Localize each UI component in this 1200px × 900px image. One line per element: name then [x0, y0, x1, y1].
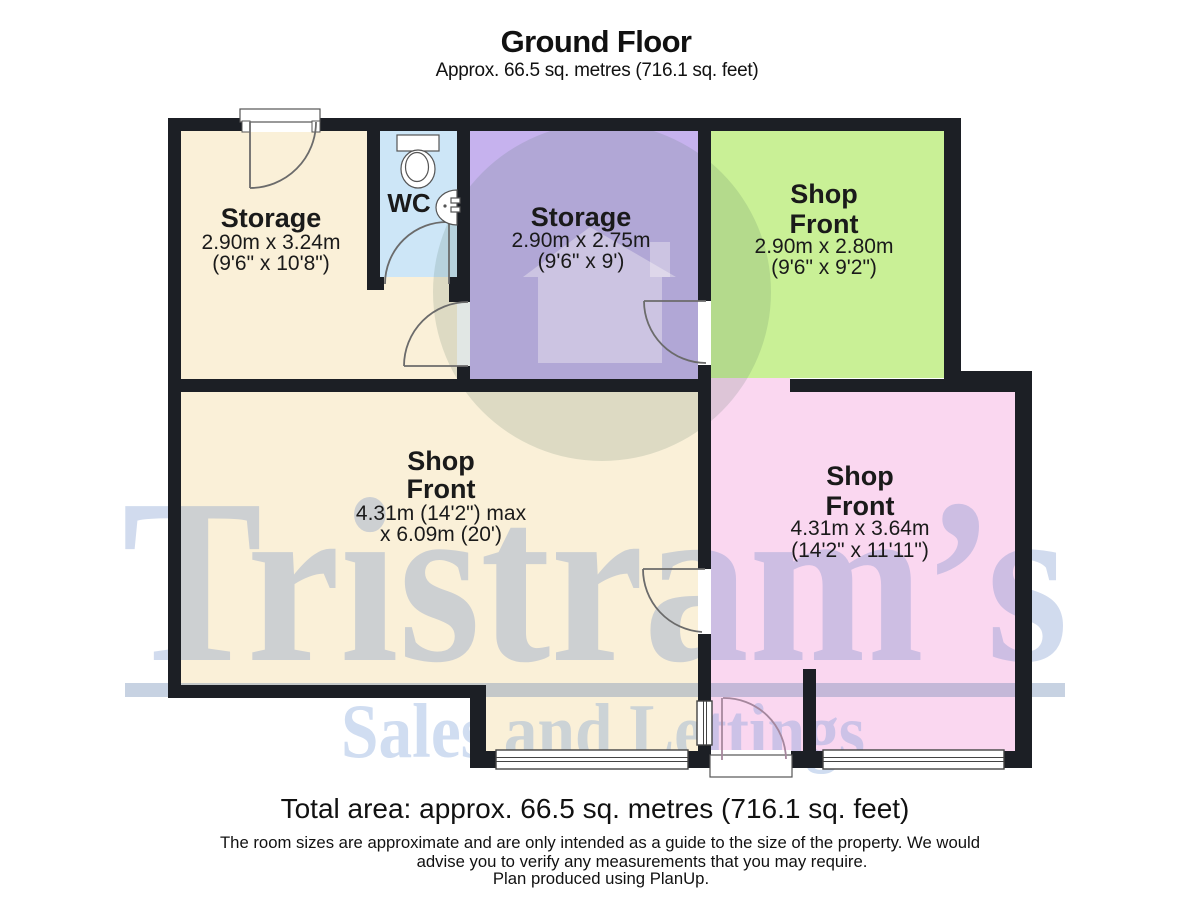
- svg-text:Tristram’s: Tristram’s: [122, 451, 1068, 711]
- svg-text:WC: WC: [387, 188, 431, 218]
- svg-text:The room sizes are approximate: The room sizes are approximate and are o…: [220, 833, 980, 852]
- svg-text:2.90m x 2.80m: 2.90m x 2.80m: [755, 235, 894, 258]
- svg-text:Shop: Shop: [790, 179, 858, 209]
- svg-text:Plan produced using PlanUp.: Plan produced using PlanUp.: [493, 869, 709, 888]
- svg-text:4.31m x 3.64m: 4.31m x 3.64m: [791, 517, 930, 540]
- svg-text:Front: Front: [407, 474, 476, 504]
- svg-text:(9'6" x 9'2"): (9'6" x 9'2"): [771, 256, 877, 279]
- svg-text:Approx. 66.5 sq. metres (716.1: Approx. 66.5 sq. metres (716.1 sq. feet): [436, 60, 759, 81]
- svg-text:2.90m x 2.75m: 2.90m x 2.75m: [512, 229, 651, 252]
- svg-text:2.90m x 3.24m: 2.90m x 3.24m: [202, 231, 341, 254]
- svg-text:Storage: Storage: [531, 202, 632, 232]
- svg-text:Ground Floor: Ground Floor: [501, 24, 692, 59]
- svg-text:4.31m (14'2") max: 4.31m (14'2") max: [356, 502, 527, 525]
- svg-text:x 6.09m (20'): x 6.09m (20'): [380, 523, 502, 546]
- svg-text:(14'2" x 11'11"): (14'2" x 11'11"): [791, 539, 929, 562]
- svg-text:(9'6" x 10'8"): (9'6" x 10'8"): [212, 252, 329, 275]
- svg-text:Shop: Shop: [826, 461, 894, 491]
- svg-text:(9'6" x 9'): (9'6" x 9'): [538, 250, 625, 273]
- svg-text:Shop: Shop: [407, 446, 475, 476]
- svg-text:Total area: approx. 66.5 sq. m: Total area: approx. 66.5 sq. metres (716…: [281, 793, 910, 824]
- svg-text:Storage: Storage: [221, 203, 322, 233]
